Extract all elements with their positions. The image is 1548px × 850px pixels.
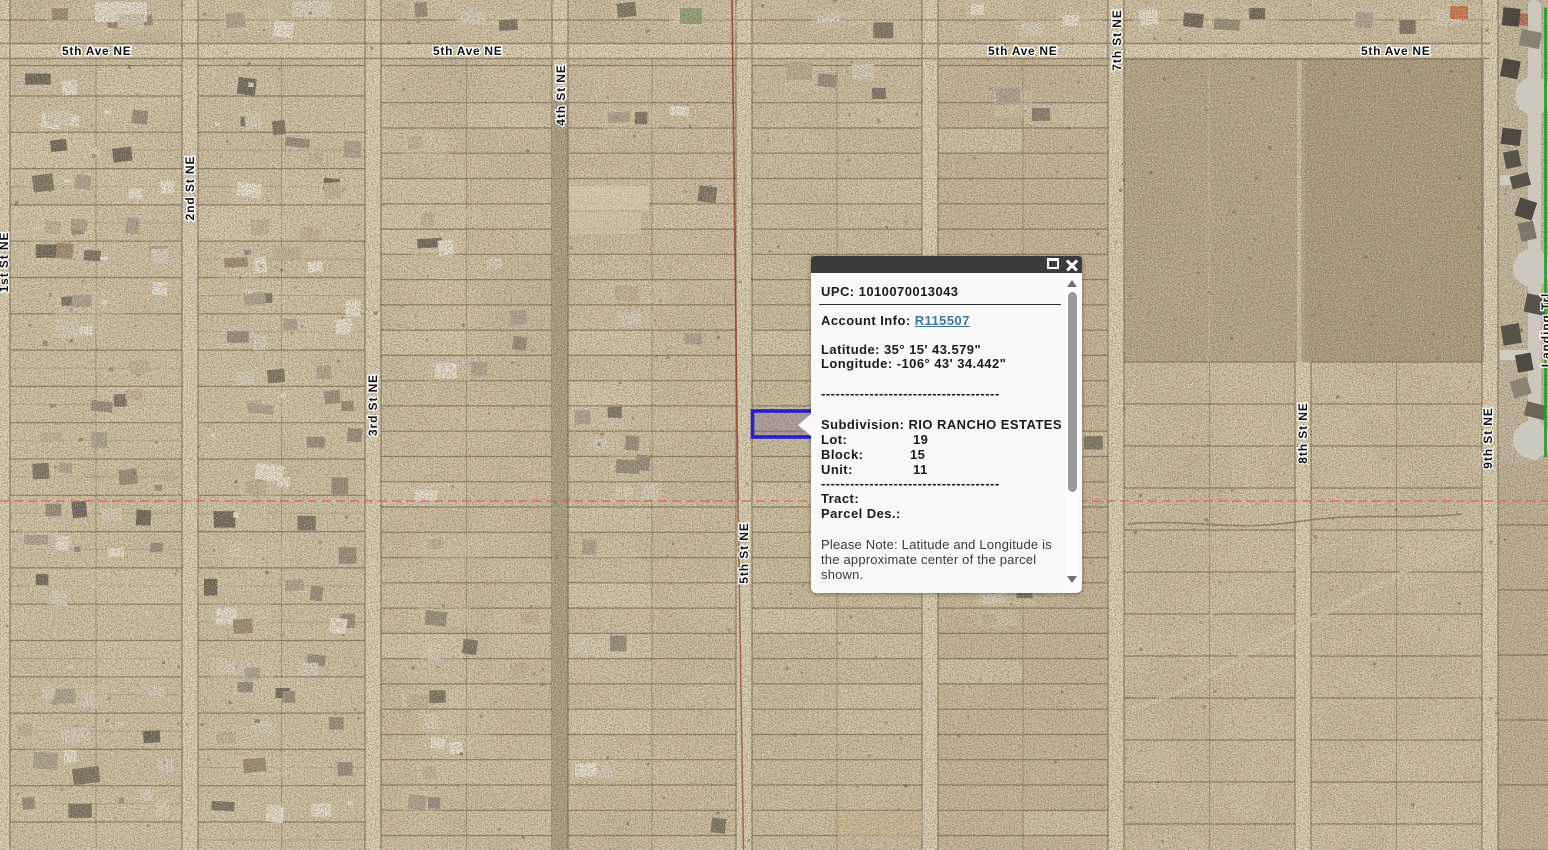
svg-text:7th St NE: 7th St NE bbox=[1110, 9, 1124, 70]
svg-text:Landing Trl: Landing Trl bbox=[1539, 293, 1548, 368]
svg-text:1st St NE: 1st St NE bbox=[0, 232, 11, 293]
svg-text:8th St NE: 8th St NE bbox=[1296, 402, 1310, 463]
svg-text:9th St NE: 9th St NE bbox=[1481, 407, 1495, 468]
svg-text:5th St NE: 5th St NE bbox=[737, 522, 751, 583]
svg-text:5th Ave NE: 5th Ave NE bbox=[1361, 44, 1430, 58]
svg-text:5th Ave NE: 5th Ave NE bbox=[62, 44, 131, 58]
svg-text:5th Ave NE: 5th Ave NE bbox=[988, 44, 1057, 58]
svg-text:3rd St NE: 3rd St NE bbox=[366, 374, 380, 436]
svg-text:2nd St NE: 2nd St NE bbox=[183, 156, 197, 221]
svg-text:4th St NE: 4th St NE bbox=[554, 64, 568, 125]
svg-text:5th Ave NE: 5th Ave NE bbox=[433, 44, 502, 58]
